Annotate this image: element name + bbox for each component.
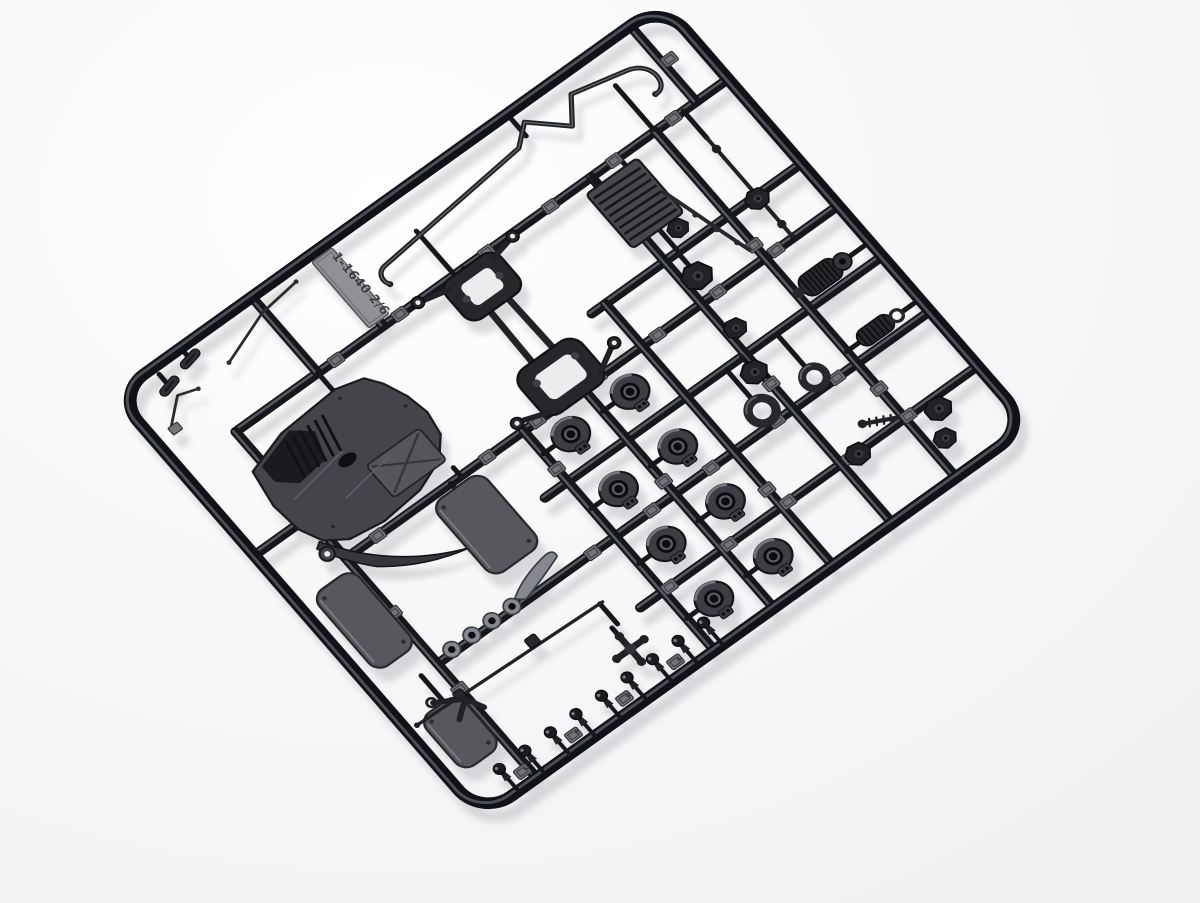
sprue-photo: 26921-1640 2/61-1640 2/6	[0, 0, 1200, 903]
sprue-sheet-svg: 26921-1640 2/61-1640 2/6	[0, 0, 1200, 903]
